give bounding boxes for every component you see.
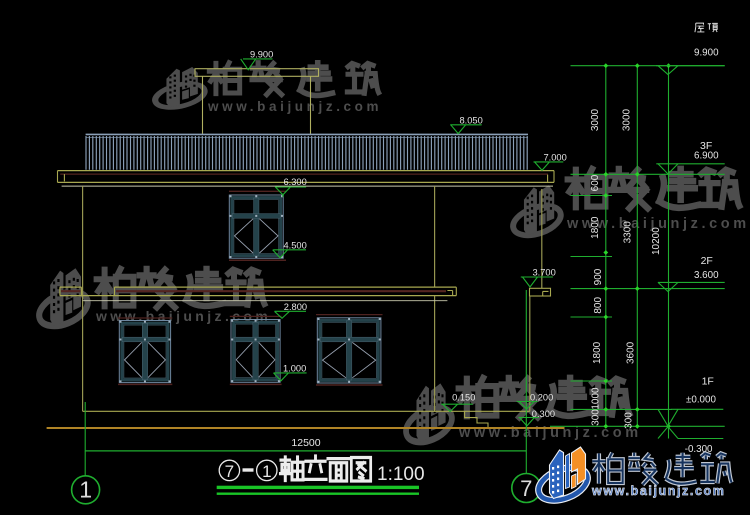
svg-text:1F: 1F xyxy=(702,376,714,388)
svg-text:300: 300 xyxy=(624,412,635,429)
svg-text:3000: 3000 xyxy=(622,108,633,131)
svg-text:0.150: 0.150 xyxy=(452,393,475,403)
svg-text:1: 1 xyxy=(79,477,92,503)
svg-text:7: 7 xyxy=(520,476,532,501)
svg-text:3F: 3F xyxy=(700,140,712,152)
svg-text:2F: 2F xyxy=(701,255,713,267)
svg-text:1.000: 1.000 xyxy=(283,364,306,374)
svg-text:10200: 10200 xyxy=(651,227,662,255)
svg-text:9.900: 9.900 xyxy=(694,47,719,58)
svg-text:6.300: 6.300 xyxy=(284,177,307,187)
svg-text:1800: 1800 xyxy=(590,216,601,239)
svg-text:1800: 1800 xyxy=(592,341,603,364)
svg-text:www.baijunjz.com: www.baijunjz.com xyxy=(207,99,382,114)
svg-text:6.900: 6.900 xyxy=(694,151,719,162)
svg-text:7: 7 xyxy=(225,462,234,481)
svg-text:7.000: 7.000 xyxy=(544,153,567,163)
svg-text:9.900: 9.900 xyxy=(250,50,273,60)
svg-text:1:100: 1:100 xyxy=(377,464,425,485)
svg-text:12500: 12500 xyxy=(291,437,320,449)
svg-text:0.200: 0.200 xyxy=(530,392,553,402)
svg-text:3300: 3300 xyxy=(623,221,634,244)
svg-text:900: 900 xyxy=(593,268,604,285)
svg-text:4.500: 4.500 xyxy=(284,241,307,251)
svg-text:1000: 1000 xyxy=(591,387,602,410)
svg-text:8.050: 8.050 xyxy=(460,115,483,125)
svg-text:300: 300 xyxy=(591,409,602,426)
svg-text:3.700: 3.700 xyxy=(533,267,556,277)
svg-text:3000: 3000 xyxy=(590,108,601,131)
svg-text:±0.000: ±0.000 xyxy=(686,395,716,406)
svg-text:3600: 3600 xyxy=(626,341,637,364)
svg-text:2.800: 2.800 xyxy=(284,302,307,312)
svg-text:www.baijunjz.com: www.baijunjz.com xyxy=(591,484,725,498)
svg-text:3.600: 3.600 xyxy=(694,270,719,281)
svg-text:1: 1 xyxy=(262,462,271,481)
svg-text:600: 600 xyxy=(590,174,601,191)
svg-text:800: 800 xyxy=(593,297,604,314)
svg-text:0.300: 0.300 xyxy=(532,409,555,419)
